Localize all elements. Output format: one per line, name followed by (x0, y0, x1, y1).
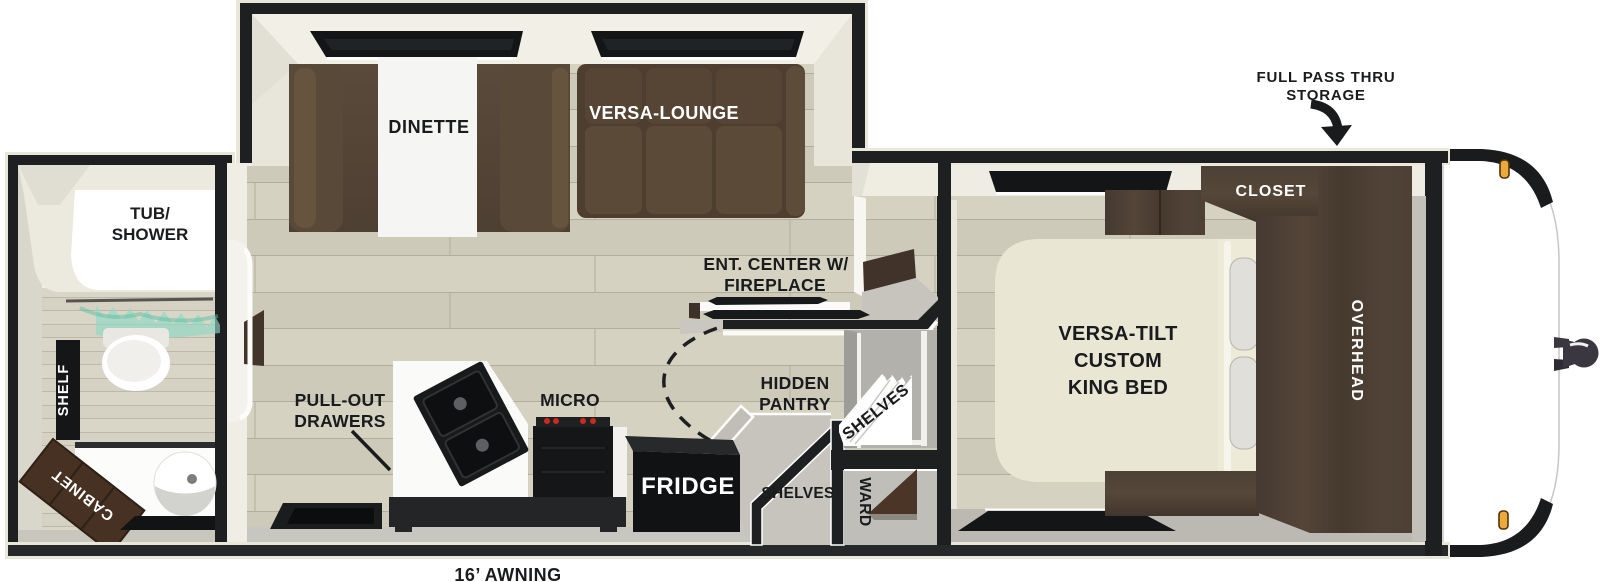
svg-text:FULL PASS THRU: FULL PASS THRU (1257, 69, 1396, 86)
svg-text:PANTRY: PANTRY (759, 394, 831, 414)
svg-text:VERSA-LOUNGE: VERSA-LOUNGE (589, 103, 739, 123)
svg-text:FIREPLACE: FIREPLACE (724, 275, 826, 295)
svg-text:SHELVES: SHELVES (761, 485, 834, 502)
svg-text:16’ AWNING: 16’ AWNING (454, 565, 561, 582)
svg-text:HIDDEN: HIDDEN (761, 373, 830, 393)
svg-text:KING BED: KING BED (1068, 377, 1168, 399)
svg-text:OVERHEAD: OVERHEAD (1348, 300, 1365, 403)
svg-text:CUSTOM: CUSTOM (1074, 350, 1162, 372)
svg-text:SHOWER: SHOWER (112, 225, 189, 244)
svg-text:DRAWERS: DRAWERS (294, 411, 386, 431)
svg-text:VERSA-TILT: VERSA-TILT (1058, 323, 1177, 345)
svg-text:STORAGE: STORAGE (1286, 87, 1366, 104)
svg-text:WARD: WARD (856, 477, 873, 526)
svg-text:ENT. CENTER W/: ENT. CENTER W/ (703, 254, 848, 274)
svg-text:FRIDGE: FRIDGE (641, 473, 735, 500)
svg-text:PULL-OUT: PULL-OUT (295, 390, 386, 410)
svg-text:DINETTE: DINETTE (388, 117, 469, 137)
svg-text:CLOSET: CLOSET (1236, 183, 1307, 200)
svg-text:TUB/: TUB/ (130, 204, 170, 223)
svg-text:SHELF: SHELF (56, 364, 72, 417)
svg-text:MICRO: MICRO (540, 390, 600, 410)
